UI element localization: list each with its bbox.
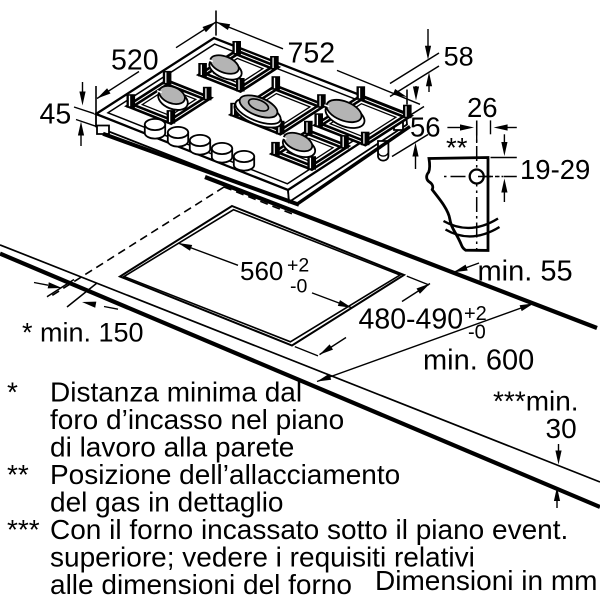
svg-text:***min.: ***min. xyxy=(493,385,579,416)
svg-text:520: 520 xyxy=(111,45,159,77)
svg-text:56: 56 xyxy=(410,112,441,143)
svg-text:**: ** xyxy=(7,459,29,490)
svg-text:45: 45 xyxy=(40,99,72,131)
svg-text:+2: +2 xyxy=(287,255,309,277)
svg-text:*: * xyxy=(7,377,18,408)
svg-text:min. 600: min. 600 xyxy=(423,345,534,377)
svg-text:min. 55: min. 55 xyxy=(478,256,573,288)
svg-text:alle dimensioni del forno: alle dimensioni del forno xyxy=(50,569,352,600)
svg-text:* min. 150: * min. 150 xyxy=(22,318,144,348)
svg-text:752: 752 xyxy=(288,38,336,70)
svg-text:30: 30 xyxy=(546,413,577,444)
svg-text:-0: -0 xyxy=(468,322,486,344)
svg-text:-0: -0 xyxy=(290,276,307,298)
svg-text:480-490: 480-490 xyxy=(359,304,464,336)
svg-text:***: *** xyxy=(7,514,40,545)
svg-text:foro d’incasso nel piano: foro d’incasso nel piano xyxy=(50,404,344,435)
svg-text:19-29: 19-29 xyxy=(520,154,590,185)
svg-text:Dimensioni in mm: Dimensioni in mm xyxy=(375,565,598,596)
svg-text:del gas in dettaglio: del gas in dettaglio xyxy=(50,487,284,518)
svg-text:di lavoro alla parete: di lavoro alla parete xyxy=(50,432,294,463)
svg-text:Distanza minima dal: Distanza minima dal xyxy=(50,377,302,408)
svg-text:Con il forno incassato sotto i: Con il forno incassato sotto il piano ev… xyxy=(50,514,568,545)
svg-text:26: 26 xyxy=(467,92,498,123)
svg-text:Posizione dell’allacciamento: Posizione dell’allacciamento xyxy=(50,459,400,490)
svg-text:58: 58 xyxy=(444,41,474,71)
svg-text:**: ** xyxy=(446,132,468,163)
svg-text:560: 560 xyxy=(240,256,283,286)
